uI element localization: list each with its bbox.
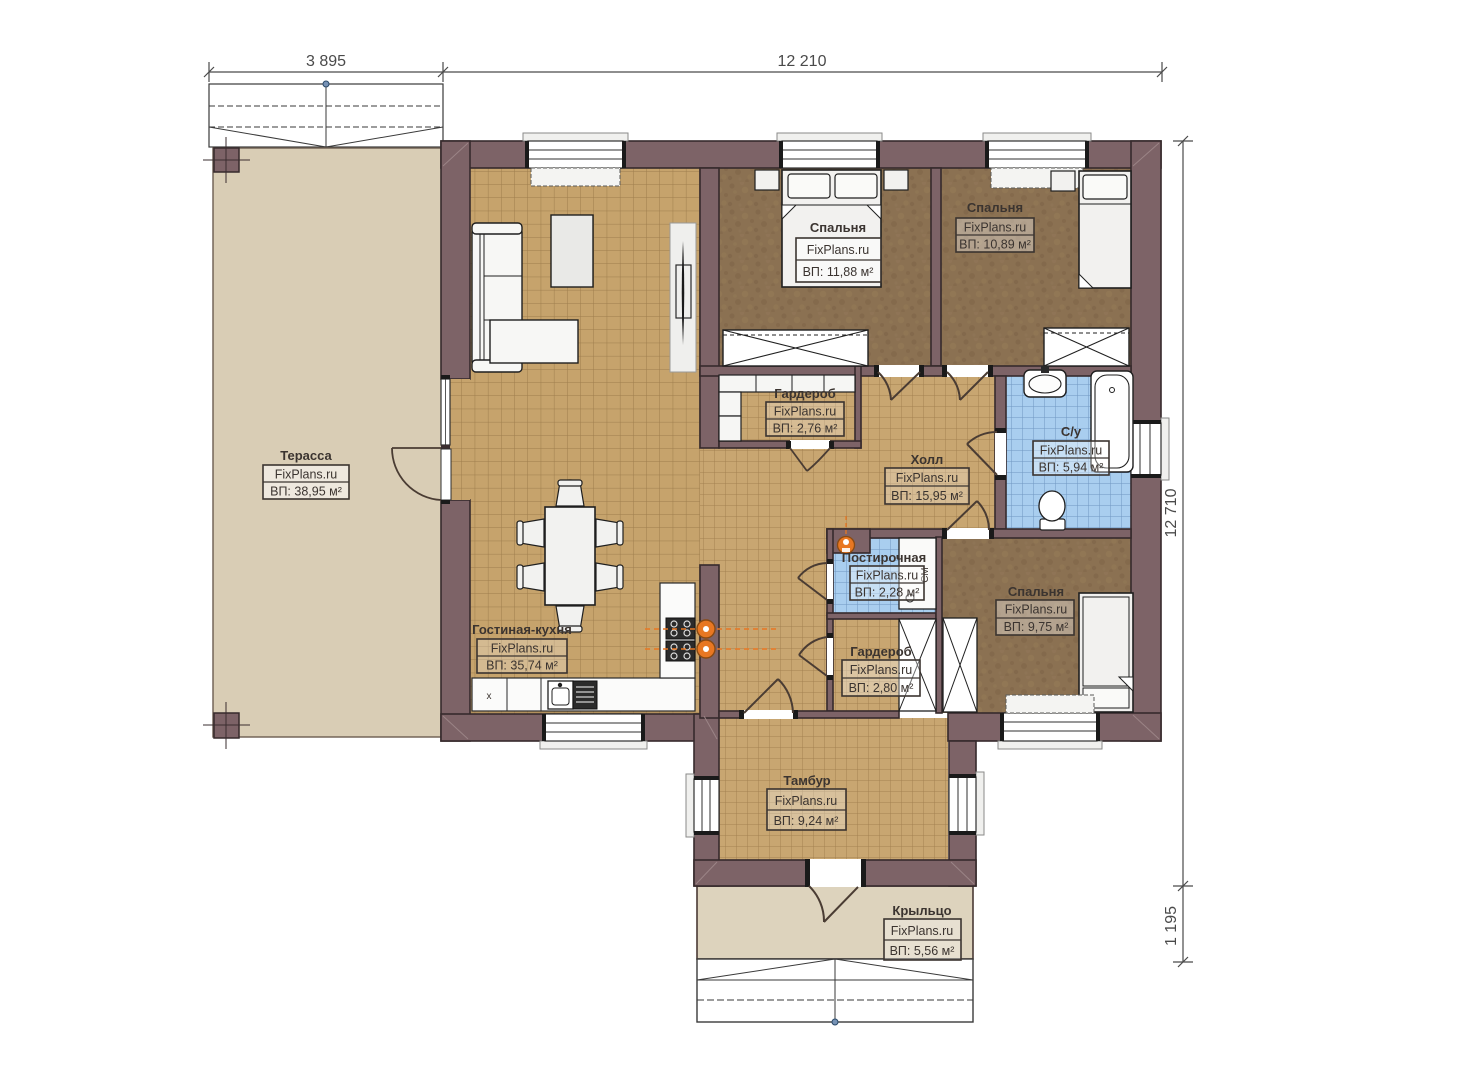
svg-text:ВП: 2,80 м²: ВП: 2,80 м² bbox=[849, 681, 914, 695]
svg-text:FixPlans.ru: FixPlans.ru bbox=[1005, 603, 1068, 617]
svg-text:ВП: 5,56 м²: ВП: 5,56 м² bbox=[890, 944, 955, 958]
svg-text:Гостиная-кухня: Гостиная-кухня bbox=[472, 622, 572, 637]
svg-text:ВП: 2,28 м²: ВП: 2,28 м² bbox=[855, 586, 920, 600]
svg-text:Спальня: Спальня bbox=[1008, 584, 1064, 599]
svg-text:FixPlans.ru: FixPlans.ru bbox=[896, 471, 959, 485]
svg-text:x: x bbox=[487, 691, 492, 702]
svg-text:С/у: С/у bbox=[1061, 424, 1082, 439]
svg-text:Тамбур: Тамбур bbox=[783, 773, 830, 788]
svg-text:FixPlans.ru: FixPlans.ru bbox=[1040, 444, 1103, 458]
svg-text:FixPlans.ru: FixPlans.ru bbox=[850, 663, 913, 677]
svg-text:12 210: 12 210 bbox=[778, 53, 827, 70]
svg-text:ВП: 9,24 м²: ВП: 9,24 м² bbox=[774, 814, 839, 828]
svg-text:FixPlans.ru: FixPlans.ru bbox=[807, 243, 870, 257]
svg-text:Постирочная: Постирочная bbox=[842, 550, 926, 565]
svg-text:ВП: 35,74 м²: ВП: 35,74 м² bbox=[486, 659, 558, 673]
svg-text:ВП: 10,89 м²: ВП: 10,89 м² bbox=[959, 238, 1031, 252]
svg-text:ВП: 9,75 м²: ВП: 9,75 м² bbox=[1004, 620, 1069, 634]
svg-text:ВП: 38,95 м²: ВП: 38,95 м² bbox=[270, 485, 342, 499]
svg-text:FixPlans.ru: FixPlans.ru bbox=[275, 468, 338, 482]
svg-text:Спальня: Спальня bbox=[967, 200, 1023, 215]
svg-text:Гардероб: Гардероб bbox=[774, 386, 835, 401]
svg-text:FixPlans.ru: FixPlans.ru bbox=[856, 569, 919, 583]
svg-text:FixPlans.ru: FixPlans.ru bbox=[491, 642, 554, 656]
svg-text:FixPlans.ru: FixPlans.ru bbox=[775, 794, 838, 808]
svg-text:Терасса: Терасса bbox=[280, 448, 332, 463]
svg-text:ВП: 15,95 м²: ВП: 15,95 м² bbox=[891, 489, 963, 503]
svg-text:Спальня: Спальня bbox=[810, 220, 866, 235]
svg-text:FixPlans.ru: FixPlans.ru bbox=[964, 221, 1027, 235]
svg-text:1 195: 1 195 bbox=[1163, 906, 1180, 946]
svg-text:12 710: 12 710 bbox=[1163, 488, 1180, 537]
svg-text:ВП: 11,88 м²: ВП: 11,88 м² bbox=[803, 265, 874, 279]
svg-text:Крыльцо: Крыльцо bbox=[892, 903, 951, 918]
svg-text:ВП: 5,94 м²: ВП: 5,94 м² bbox=[1039, 461, 1104, 475]
svg-text:Холл: Холл bbox=[911, 452, 944, 467]
svg-text:FixPlans.ru: FixPlans.ru bbox=[891, 924, 954, 938]
svg-text:Гардероб: Гардероб bbox=[850, 644, 911, 659]
svg-text:3 895: 3 895 bbox=[306, 53, 346, 70]
svg-text:FixPlans.ru: FixPlans.ru bbox=[774, 405, 837, 419]
svg-text:ВП: 2,76 м²: ВП: 2,76 м² bbox=[773, 422, 838, 436]
